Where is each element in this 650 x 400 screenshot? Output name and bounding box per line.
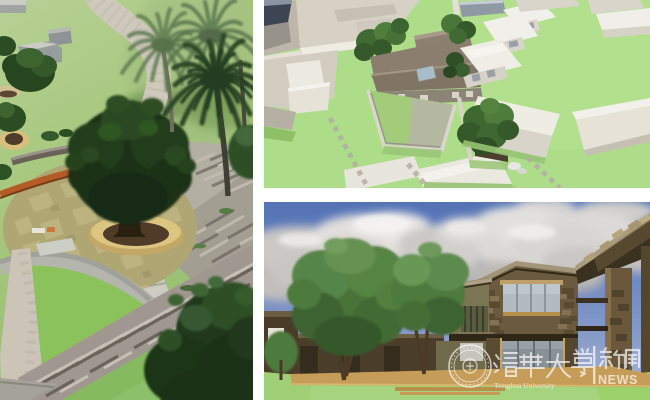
- svg-text:NEWS: NEWS: [598, 373, 638, 387]
- svg-text:Tsinghua University: Tsinghua University: [494, 381, 555, 390]
